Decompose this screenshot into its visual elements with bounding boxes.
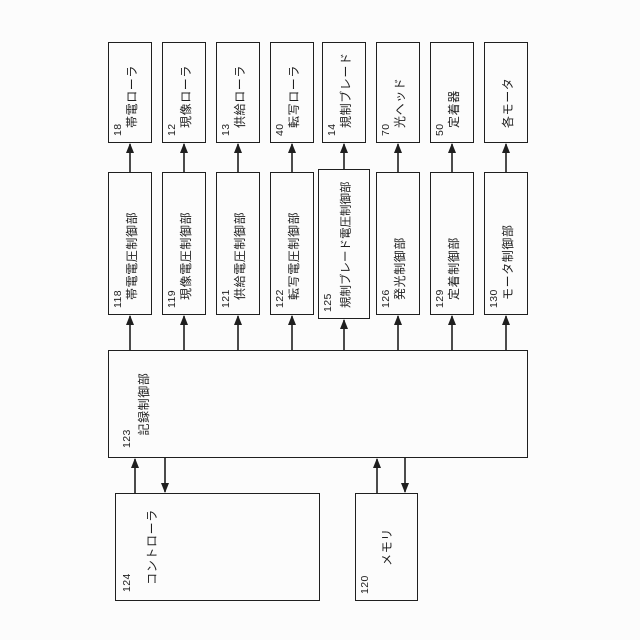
box-label: コントローラ xyxy=(143,494,160,600)
box-regulating-blade: 14 規制ブレード xyxy=(322,42,366,143)
ref-number: 124 xyxy=(121,573,133,592)
box-emission-control: 126 発光制御部 xyxy=(376,172,420,315)
box-label: 帯電ローラ xyxy=(123,65,140,128)
box-label: 帯電電圧制御部 xyxy=(123,212,140,300)
box-label: 供給ローラ xyxy=(231,65,248,128)
box-memory: 120 メモリ xyxy=(355,493,418,601)
connector-arrows xyxy=(0,0,640,640)
box-label: 規制ブレード xyxy=(337,52,354,128)
ref-number: 120 xyxy=(359,575,371,594)
box-label: 発光制御部 xyxy=(391,237,408,300)
ref-number: 125 xyxy=(322,293,334,312)
box-label: 現像ローラ xyxy=(177,65,194,128)
box-label: 転写ローラ xyxy=(285,65,302,128)
box-label: 光ヘッド xyxy=(391,78,408,128)
box-label: 供給電圧制御部 xyxy=(231,212,248,300)
box-label: 記録制御部 xyxy=(135,351,152,457)
box-fuser: 50 定着器 xyxy=(430,42,474,143)
box-motor-control: 130 モータ制御部 xyxy=(484,172,528,315)
box-recording-control: 123 記録制御部 xyxy=(108,350,528,458)
box-label: 規制ブレード電圧制御部 xyxy=(337,182,353,309)
box-controller: 124 コントローラ xyxy=(115,493,320,601)
box-label: 定着器 xyxy=(445,90,462,128)
ref-number: 123 xyxy=(121,429,133,448)
rotated-diagram: 124 コントローラ 120 メモリ 123 記録制御部 118 帯電電圧制御部… xyxy=(0,0,640,640)
box-label: メモリ xyxy=(378,528,395,566)
box-label: 転写電圧制御部 xyxy=(285,212,302,300)
box-label: 現像電圧制御部 xyxy=(177,212,194,300)
box-motors: 各モータ xyxy=(484,42,528,143)
box-blade-voltage-control: 125 規制ブレード電圧制御部 xyxy=(318,169,370,319)
box-supply-voltage-control: 121 供給電圧制御部 xyxy=(216,172,260,315)
box-charging-voltage-control: 118 帯電電圧制御部 xyxy=(108,172,152,315)
box-label: 定着制御部 xyxy=(445,237,462,300)
box-developing-roller: 12 現像ローラ xyxy=(162,42,206,143)
box-label: 各モータ xyxy=(499,78,516,128)
box-optical-head: 70 光ヘッド xyxy=(376,42,420,143)
box-transfer-roller: 40 転写ローラ xyxy=(270,42,314,143)
patent-figure-canvas: 124 コントローラ 120 メモリ 123 記録制御部 118 帯電電圧制御部… xyxy=(0,0,640,640)
box-charging-roller: 18 帯電ローラ xyxy=(108,42,152,143)
box-transfer-voltage-control: 122 転写電圧制御部 xyxy=(270,172,314,315)
box-label: モータ制御部 xyxy=(499,224,516,300)
box-developing-voltage-control: 119 現像電圧制御部 xyxy=(162,172,206,315)
box-fusing-control: 129 定着制御部 xyxy=(430,172,474,315)
box-supply-roller: 13 供給ローラ xyxy=(216,42,260,143)
